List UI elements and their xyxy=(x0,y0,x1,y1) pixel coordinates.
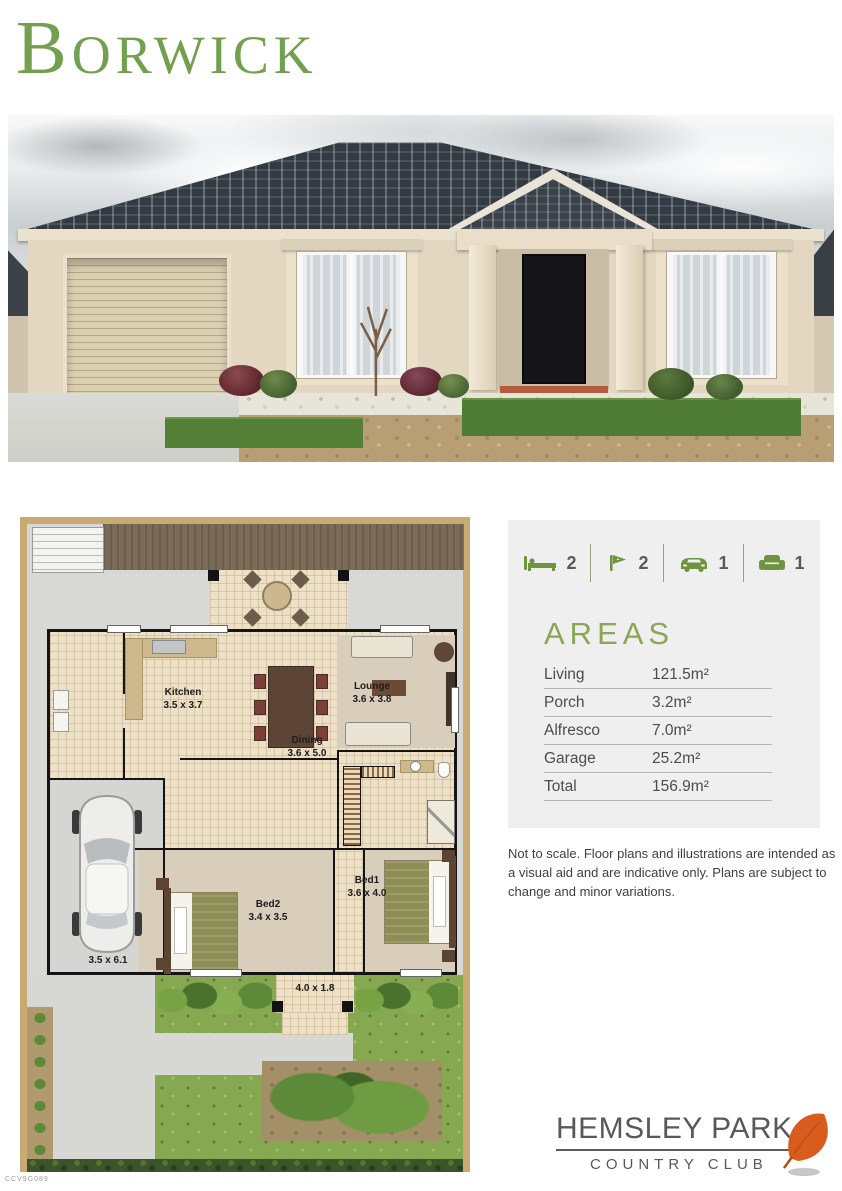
area-value: 7.0m² xyxy=(652,722,772,740)
wall xyxy=(134,848,455,850)
area-label: Porch xyxy=(544,694,652,712)
wall xyxy=(337,750,455,752)
car-icon xyxy=(678,552,710,574)
window-marker xyxy=(380,625,430,633)
plan-border-right xyxy=(463,517,470,1172)
wardrobe xyxy=(343,766,361,846)
area-label: Alfresco xyxy=(544,722,652,740)
room-dims: 3.6 x 4.0 xyxy=(348,888,387,901)
tank-slats xyxy=(32,527,104,573)
area-label: Total xyxy=(544,778,652,796)
car-top-view xyxy=(70,792,144,956)
small-tree xyxy=(347,289,405,397)
area-row: Porch 3.2m² xyxy=(544,689,772,717)
front-door xyxy=(522,254,586,384)
garage-door xyxy=(63,254,232,394)
wall xyxy=(333,850,335,972)
hemsley-park-logo: HEMSLEY PARK COUNTRY CLUB xyxy=(556,1112,838,1173)
bush xyxy=(706,374,743,400)
sofa xyxy=(351,636,413,658)
wall xyxy=(123,728,125,780)
feature-stats: 2 2 1 xyxy=(508,544,820,582)
floor-plan: Kitchen 3.5 x 3.7 Lounge 3.6 x 3.8 Dinin… xyxy=(20,517,470,1172)
bush xyxy=(648,368,693,399)
room-label-porch: 4.0 x 1.8 xyxy=(296,983,335,996)
bed2-bed xyxy=(170,892,238,970)
nightstand xyxy=(442,850,455,862)
window-glass xyxy=(667,252,775,378)
area-value: 25.2m² xyxy=(652,750,772,768)
room-name: Bed1 xyxy=(348,875,387,888)
plant-green xyxy=(438,374,469,398)
plan-border-left xyxy=(20,517,27,1172)
room-label-garage: 3.5 x 6.1 xyxy=(89,955,128,968)
stat-value: 2 xyxy=(638,553,648,574)
stat-value: 2 xyxy=(566,553,576,574)
porch-post xyxy=(272,1001,283,1012)
dining-chair xyxy=(316,674,328,689)
area-value: 3.2m² xyxy=(652,694,772,712)
disclaimer-text: Not to scale. Floor plans and illustrati… xyxy=(508,845,842,902)
areas-table: Living 121.5m² Porch 3.2m² Alfresco 7.0m… xyxy=(544,661,772,801)
toilet xyxy=(438,762,450,778)
side-table xyxy=(434,642,454,662)
dining-chair xyxy=(254,700,266,715)
window-marker xyxy=(107,625,141,633)
footer-code: CCV9G089 xyxy=(5,1176,49,1183)
alfresco-post xyxy=(338,570,349,581)
house-exterior-photo xyxy=(8,115,834,462)
window-marker xyxy=(170,625,228,633)
room-name: Kitchen xyxy=(164,687,203,700)
sofa xyxy=(345,722,411,746)
pillow xyxy=(433,876,446,927)
room-name: Dining xyxy=(288,735,327,748)
area-row: Garage 25.2m² xyxy=(544,745,772,773)
basin xyxy=(410,761,421,772)
stat-garage: 1 xyxy=(664,552,743,574)
plan-border-top xyxy=(20,517,470,524)
stat-bathrooms: 2 xyxy=(591,552,662,574)
dining-chair xyxy=(254,674,266,689)
hedge-left xyxy=(27,1007,53,1159)
area-value: 121.5m² xyxy=(652,666,772,684)
walkway xyxy=(282,1011,348,1035)
window-marker xyxy=(451,687,459,733)
info-card: 2 2 1 xyxy=(508,520,820,828)
nightstand xyxy=(442,950,455,962)
leaf-icon xyxy=(780,1108,836,1178)
area-row: Living 121.5m² xyxy=(544,661,772,689)
porch-post xyxy=(342,1001,353,1012)
garden-bed xyxy=(262,1061,442,1141)
lawn-right xyxy=(462,398,801,436)
plant-green xyxy=(260,370,297,398)
shower xyxy=(427,800,455,844)
kitchen-sink xyxy=(152,640,186,654)
window-cornice xyxy=(652,239,792,250)
deck xyxy=(103,524,464,570)
plant-red xyxy=(400,367,441,396)
lawn-left xyxy=(165,417,363,448)
room-name: Bed2 xyxy=(249,899,288,912)
hedge-bottom xyxy=(27,1159,463,1172)
porch-column-right xyxy=(616,245,643,389)
areas-heading: AREAS xyxy=(544,616,674,652)
room-dims: 3.6 x 5.0 xyxy=(288,748,327,761)
area-row: Total 156.9m² xyxy=(544,773,772,801)
bed-icon xyxy=(523,552,557,574)
brochure-page: BORWICK xyxy=(0,0,842,1191)
dining-chair xyxy=(316,700,328,715)
room-dims: 3.4 x 3.5 xyxy=(249,912,288,925)
room-dims: 3.5 x 6.1 xyxy=(89,955,128,968)
garden-strip-right xyxy=(356,975,458,1021)
dining-chair xyxy=(254,726,266,741)
pillow xyxy=(174,907,187,954)
window-marker xyxy=(190,969,242,977)
room-label-kitchen: Kitchen 3.5 x 3.7 xyxy=(164,687,203,712)
wardrobe xyxy=(361,766,395,778)
shower-icon xyxy=(605,552,629,574)
wall xyxy=(50,778,165,780)
room-label-dining: Dining 3.6 x 5.0 xyxy=(288,735,327,760)
window-cornice xyxy=(282,239,422,250)
stat-value: 1 xyxy=(719,553,729,574)
laundry-appliance xyxy=(53,712,69,732)
logo-divider xyxy=(556,1149,790,1151)
area-label: Garage xyxy=(544,750,652,768)
blanket xyxy=(192,893,237,969)
room-dims: 3.5 x 3.7 xyxy=(164,700,203,713)
plant-red xyxy=(219,365,264,396)
area-row: Alfresco 7.0m² xyxy=(544,717,772,745)
wall xyxy=(337,750,339,850)
area-value: 156.9m² xyxy=(652,778,772,796)
blanket xyxy=(385,861,429,943)
alfresco-post xyxy=(208,570,219,581)
room-dims: 3.6 x 3.8 xyxy=(353,694,392,707)
room-dims: 4.0 x 1.8 xyxy=(296,983,335,996)
bed1-bed xyxy=(384,860,450,944)
porch-column-left xyxy=(469,245,496,389)
laundry-appliance xyxy=(53,690,69,710)
wall xyxy=(363,850,365,972)
page-title: BORWICK xyxy=(16,8,318,95)
window-right xyxy=(656,245,788,385)
garden-strip-left xyxy=(158,975,272,1021)
nightstand xyxy=(156,878,169,890)
headboard xyxy=(449,856,456,948)
stat-bedrooms: 2 xyxy=(509,552,590,574)
room-label-bed2: Bed2 3.4 x 3.5 xyxy=(249,899,288,924)
outdoor-table xyxy=(262,581,292,611)
kitchen-bench xyxy=(125,638,143,720)
nightstand xyxy=(156,958,169,970)
armchair-icon xyxy=(758,552,786,574)
room-name: Lounge xyxy=(353,681,392,694)
area-label: Living xyxy=(544,666,652,684)
room-label-bed1: Bed1 3.6 x 4.0 xyxy=(348,875,387,900)
stat-living: 1 xyxy=(744,552,819,574)
room-label-lounge: Lounge 3.6 x 3.8 xyxy=(353,681,392,706)
window-marker xyxy=(400,969,442,977)
stat-value: 1 xyxy=(795,553,805,574)
